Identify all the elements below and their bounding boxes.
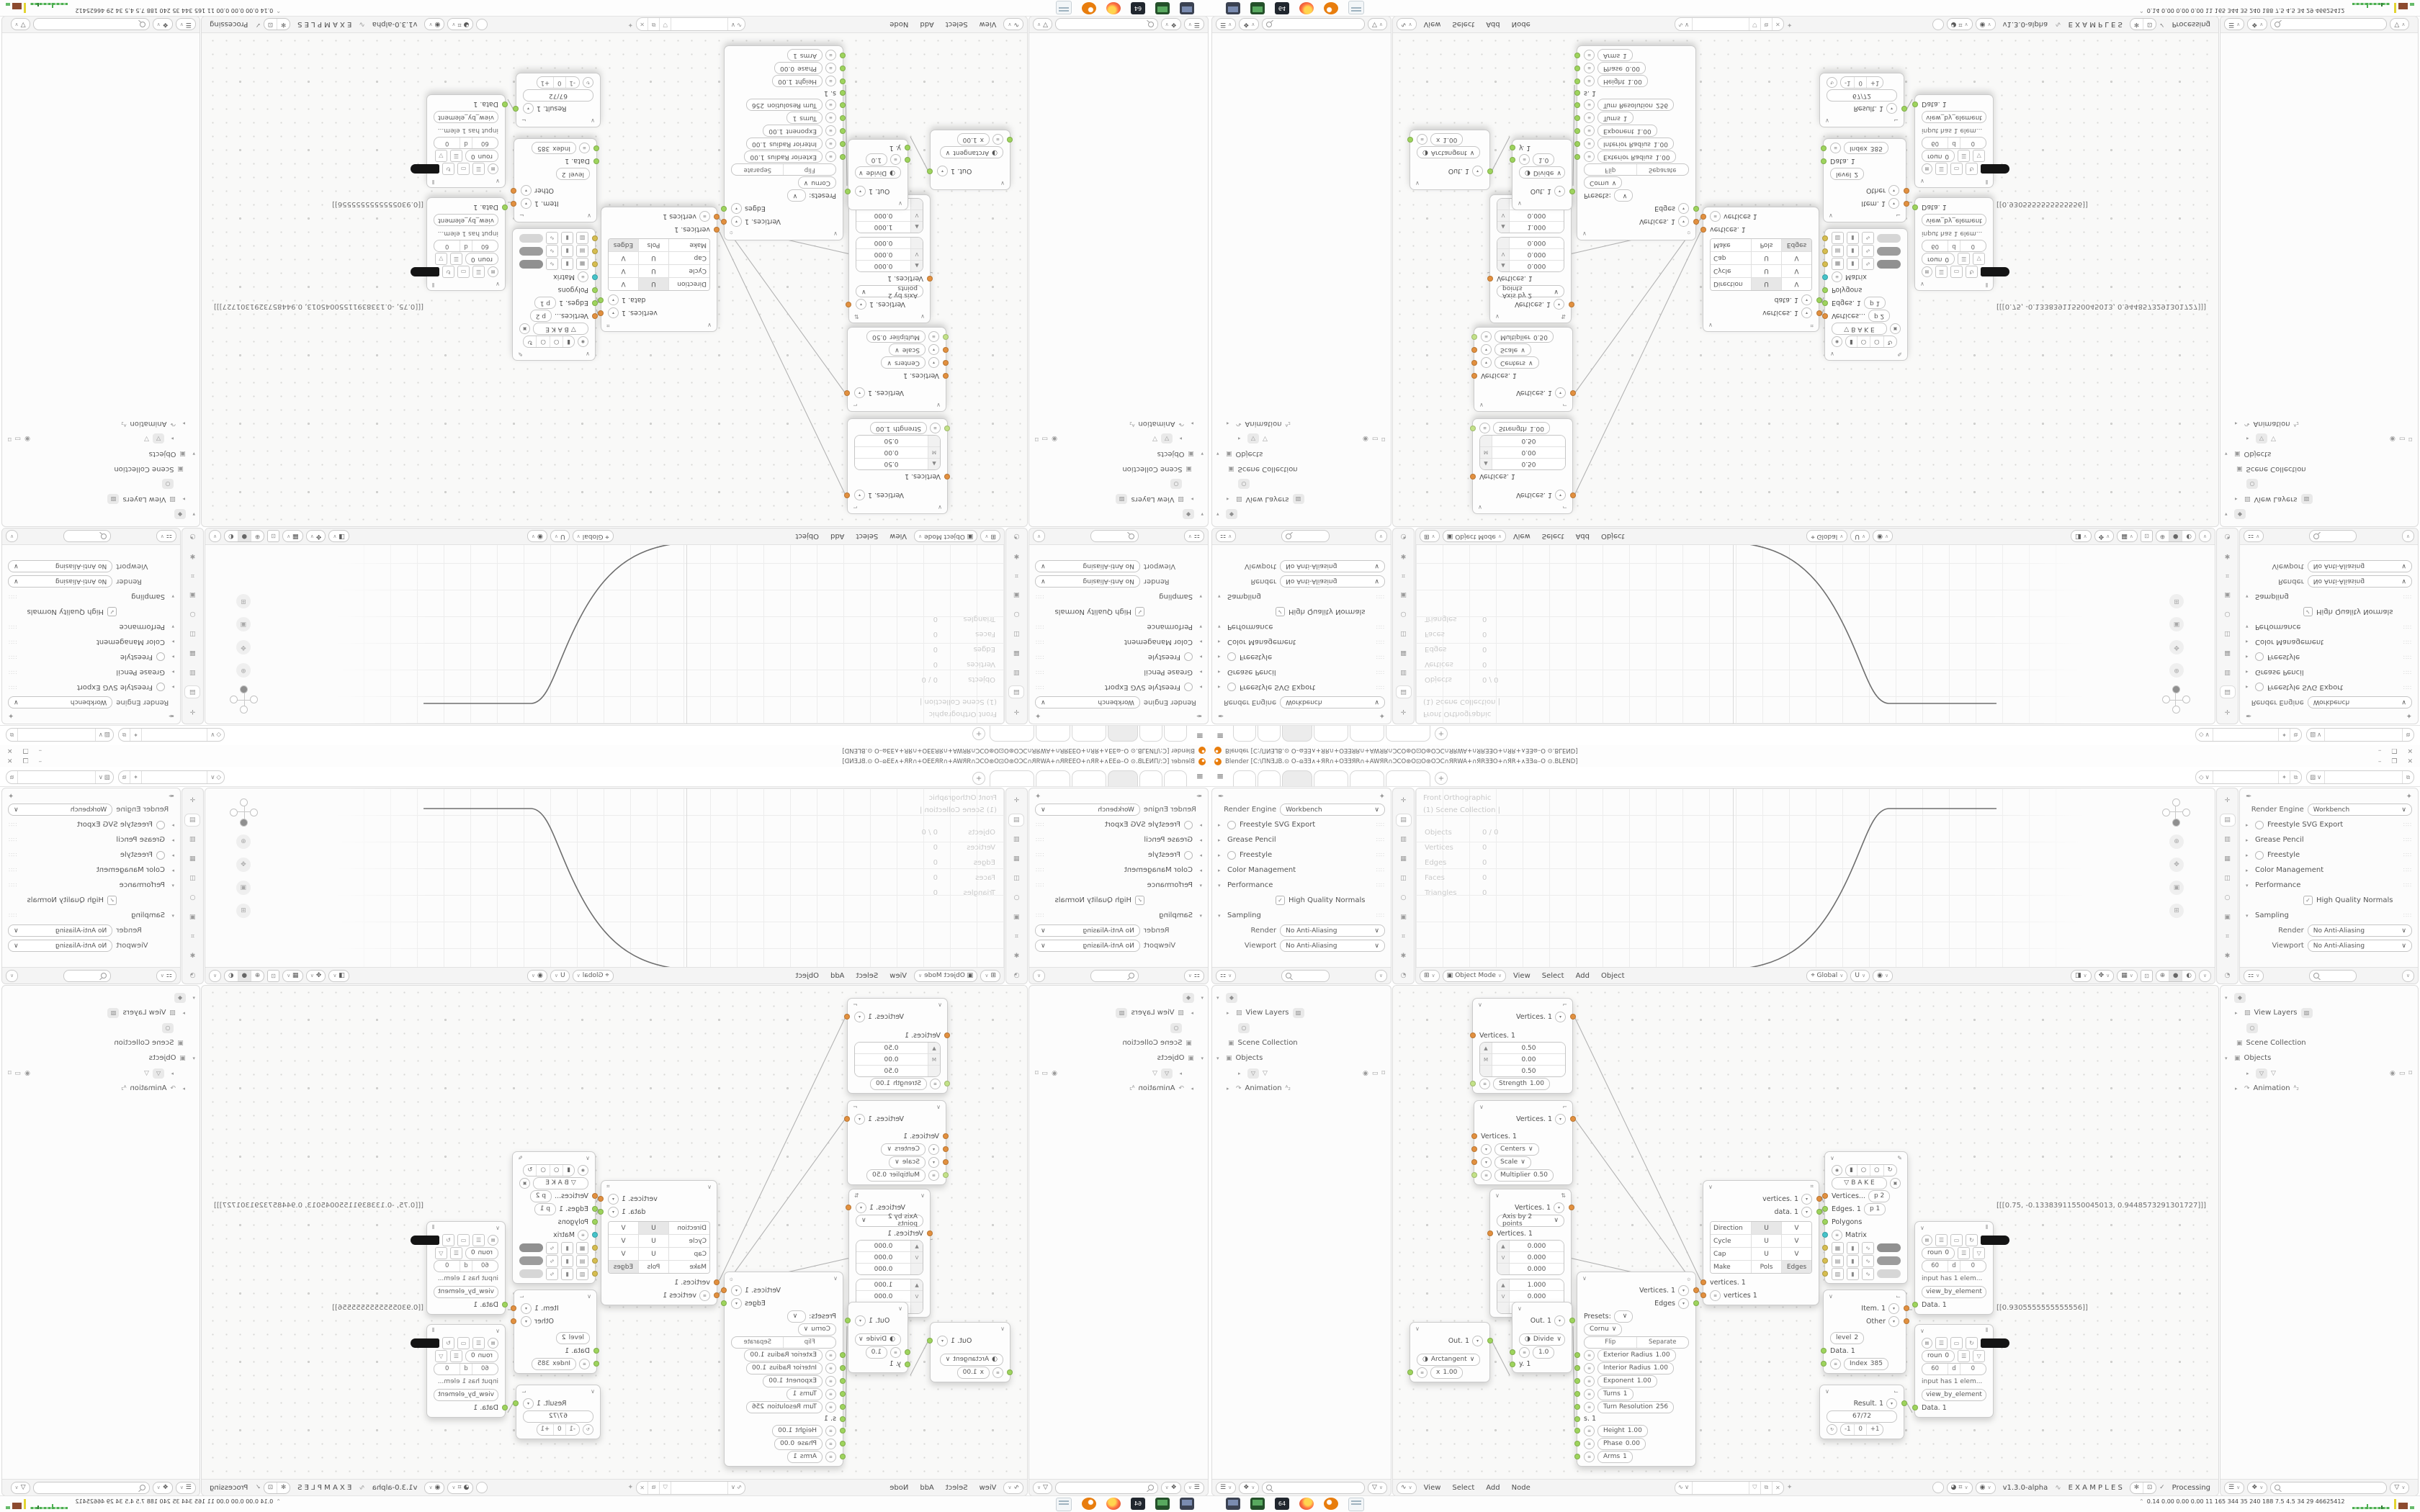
socket-menu-button[interactable]: ▾	[1678, 217, 1689, 228]
outliner-objects-row[interactable]: ▾▣Objects	[2225, 1050, 2418, 1066]
make-edges-button[interactable]: Edges	[1781, 1261, 1811, 1273]
navigation-gizmo[interactable]	[232, 688, 256, 712]
socket-menu-button[interactable]: ▾	[1801, 1207, 1812, 1218]
search-input[interactable]	[2270, 19, 2387, 31]
text-color-swatch[interactable]	[1981, 268, 2009, 277]
world-tab-icon[interactable]: ○	[185, 608, 201, 621]
menu-hamburger-icon[interactable]: ≡	[1216, 771, 1224, 781]
object-toggle[interactable]: ≡	[1584, 100, 1595, 111]
process-indicator-circle[interactable]	[1932, 1482, 1944, 1493]
outliner-root-row[interactable]: ▾◆	[2225, 990, 2418, 1005]
perspective-toggle-icon[interactable]: ⊞	[2169, 594, 2184, 608]
outliner-view-layers-row[interactable]: ▸▨View Layers▨	[2225, 492, 2418, 507]
socket[interactable]	[1471, 360, 1477, 366]
scene-selector[interactable]: ◇∨ ✦ ⧉	[118, 770, 225, 784]
editor-type-button[interactable]: ☰∨	[176, 1482, 196, 1494]
outliner-world-row[interactable]: ○	[2, 477, 195, 492]
outliner-world-row[interactable]: ○	[2225, 477, 2418, 492]
socket[interactable]	[1693, 1300, 1699, 1306]
height-field[interactable]: Height1.00	[1597, 76, 1648, 88]
exponent-field[interactable]: Exponent1.00	[1597, 125, 1657, 138]
examples-menu[interactable]: E X A M P L E S	[2064, 1484, 2127, 1492]
object-toggle[interactable]: ≡	[825, 1426, 836, 1436]
list-icon[interactable]: ☰	[1958, 1350, 1970, 1362]
object-toggle[interactable]: ▾	[1481, 345, 1492, 356]
outliner-root-row[interactable]: ▾◆	[1216, 507, 1391, 522]
section-performance[interactable]: ▾Performance∷∷	[2240, 878, 2418, 893]
menu-add[interactable]: Add	[1482, 21, 1504, 29]
pin-icon[interactable]: ✦	[1035, 793, 1041, 801]
socket[interactable]	[846, 302, 852, 307]
presets-dropdown[interactable]: ∨	[787, 190, 807, 202]
menu-hamburger-icon[interactable]: ≡	[1196, 731, 1204, 741]
socket[interactable]	[1821, 158, 1827, 164]
node-header[interactable]: ∨⌗	[1703, 320, 1819, 331]
view-mode-button[interactable]: view_by_element	[434, 1286, 498, 1298]
socket-menu-button[interactable]: ▾	[1888, 1303, 1899, 1314]
pan-tool-icon[interactable]: ✥	[236, 858, 251, 872]
text-color-swatch[interactable]	[1981, 165, 2009, 174]
presets-dropdown[interactable]: ∨	[1614, 190, 1633, 202]
minimize-button[interactable]: –	[2378, 747, 2382, 755]
socket-menu-button[interactable]: ▾	[1555, 1114, 1566, 1125]
socket[interactable]	[1821, 1361, 1827, 1367]
workspace-tab-1[interactable]	[1164, 770, 1187, 786]
visibility-render-icon[interactable]: ⌑	[8, 1070, 12, 1077]
outliner-object-row[interactable]: ▸▽▽◉▭⌑	[1216, 431, 1391, 446]
viewport-3d[interactable]: Front Orthographic (1) Scene Collection …	[1415, 788, 2215, 984]
object-toggle[interactable]: ≡	[992, 1367, 1003, 1378]
node-stethoscope-2[interactable]: ∨⦀ ▤☰▭↻ roun0☰▽ 60d0 input has 1 elem...…	[426, 1324, 506, 1418]
gizmo-axis-x[interactable]	[2162, 696, 2170, 703]
filter-button[interactable]: ▽∨	[1033, 19, 1052, 31]
object-toggle[interactable]: ≡	[579, 1359, 590, 1369]
solid-shading-icon[interactable]: ●	[238, 531, 251, 542]
socket-menu-button[interactable]: ▾	[1472, 1336, 1483, 1346]
increment-button[interactable]: +1	[1867, 78, 1883, 89]
section-freestyle[interactable]: ▸Freestyle∷∷	[1029, 847, 1208, 863]
socket[interactable]	[1574, 1441, 1580, 1446]
object-toggle[interactable]: ≡	[930, 1079, 941, 1089]
swatch-option-icon[interactable]: ▦	[1832, 258, 1844, 271]
edge-display-icon[interactable]: ○	[1857, 337, 1870, 348]
node-scale[interactable]: ∨⌐ Vertices. 1▾ Vertices. 1 ▾Centers∨ ▾S…	[1474, 327, 1573, 412]
taskbar-monitor-icon[interactable]	[1226, 2, 1240, 14]
object-tab-icon[interactable]: ▣	[185, 588, 201, 601]
node-uv-connection[interactable]: ∨⌗ vertices. 1▾ data. 1▾ DirectionUV Cyc…	[1703, 1180, 1819, 1305]
object-toggle[interactable]: ≡	[825, 50, 836, 61]
socket[interactable]	[1822, 1245, 1828, 1251]
scale-dropdown[interactable]: Scale∨	[1494, 1156, 1531, 1169]
menu-add[interactable]: Add	[826, 533, 848, 541]
xray-button[interactable]: ▦∨	[282, 970, 303, 982]
node-stethoscope-1[interactable]: ∨⦀ ▤☰▭↻ roun0☰▽ 60d0 input has 1 elem...…	[426, 197, 506, 291]
search-input[interactable]	[33, 1482, 150, 1494]
section-freestyle-svg[interactable]: ▸Freestyle SVG Export∷∷	[2, 817, 180, 832]
render-aa-dropdown[interactable]: No Anti-Aliasing∨	[8, 924, 112, 937]
stepper[interactable]: -10+1	[537, 1423, 580, 1436]
refresh-icon[interactable]: ↻	[1827, 78, 1837, 89]
math-function-dropdown[interactable]: ◑Divide∨	[855, 167, 901, 179]
node-header[interactable]: ∨✎	[513, 348, 595, 360]
object-toggle[interactable]: ▾	[928, 1144, 939, 1155]
visibility-render-icon[interactable]: ⌑	[1035, 1070, 1039, 1077]
text-color-swatch[interactable]	[411, 1338, 439, 1348]
turns-field[interactable]: Turns1	[1597, 112, 1633, 125]
socket[interactable]	[1574, 1404, 1580, 1410]
unlink-icon[interactable]: ✕	[1772, 19, 1783, 31]
outliner-scene-collection-row[interactable]: ▣Scene Collection	[1029, 1035, 1204, 1050]
axis-mode-dropdown[interactable]: Axis by 2 points∨	[856, 1215, 923, 1227]
render-tab-icon[interactable]: ▤	[1009, 685, 1025, 698]
minimize-button[interactable]: –	[39, 758, 42, 765]
node-header[interactable]: ∨⌐	[848, 502, 947, 513]
face-display-icon[interactable]: ○	[1870, 1165, 1883, 1176]
outliner-object-row[interactable]: ▸▽▽◉▭⌑	[2225, 1066, 2418, 1081]
menu-select[interactable]: Select	[941, 21, 972, 29]
outliner-scene-collection-row[interactable]: ▣Scene Collection	[1029, 462, 1204, 477]
socket-menu-button[interactable]: ▾	[855, 186, 866, 197]
socket[interactable]	[599, 1209, 604, 1215]
render-aa-dropdown[interactable]: No Anti-Aliasing∨	[2308, 924, 2412, 937]
object-toggle[interactable]: ≡	[1417, 135, 1428, 145]
material-shading-icon[interactable]: ◐	[225, 531, 237, 542]
socket[interactable]	[722, 1287, 727, 1293]
socket-menu-button[interactable]: ▾	[1888, 186, 1899, 197]
spiral-type-dropdown[interactable]: Cornu∨	[798, 1323, 836, 1336]
exponent-field[interactable]: Exponent1.00	[1597, 1375, 1657, 1387]
close-button[interactable]: ✕	[7, 758, 13, 765]
toggle-checkbox[interactable]	[1227, 821, 1236, 829]
value-field[interactable]: 1.0	[866, 154, 887, 166]
viewport-3d[interactable]: Front Orthographic (1) Scene Collection …	[205, 528, 1005, 724]
transform-orientation-dropdown[interactable]: ⌖Global∨	[573, 970, 614, 982]
node-mirror-axis[interactable]: ∨⇅ Vertices. 1▾ Axis by 2 points∨ Vertic…	[848, 194, 931, 323]
filter-button[interactable]: ∨	[2402, 970, 2414, 982]
object-toggle[interactable]: ≡	[1584, 76, 1595, 87]
socket-menu-button[interactable]: ▾	[523, 1398, 534, 1409]
node-stethoscope-1[interactable]: ∨⦀ ▤☰▭↻ roun0☰▽ 60d0 input has 1 elem...…	[1914, 197, 1994, 291]
width-fields[interactable]: 60d0	[1922, 1363, 1986, 1375]
socket[interactable]	[1570, 1116, 1576, 1122]
add-workspace-button[interactable]: +	[1435, 772, 1448, 785]
view-mode-button[interactable]: view_by_element	[434, 112, 498, 124]
node-list-item[interactable]: ∨⌙ Item. 1▾ Other▾ level2 Data. 1 ≡Index…	[1823, 1290, 1906, 1374]
lines-icon[interactable]: ☰	[472, 266, 485, 279]
section-sampling[interactable]: ▾Sampling∷∷	[1212, 908, 1391, 923]
physics-tab-icon[interactable]: ◔	[1009, 530, 1025, 543]
socket-menu-button[interactable]: ▾	[1678, 204, 1689, 215]
scene-name-field[interactable]	[142, 729, 207, 741]
node-header[interactable]: ∨⌐	[1473, 502, 1572, 513]
taskbar-floppy-icon[interactable]: 64	[1131, 1498, 1145, 1510]
swatch-option-icon[interactable]: ∿	[546, 1242, 558, 1254]
editor-type-button[interactable]: ☰∨	[176, 19, 196, 31]
object-toggle[interactable]: ≡	[1584, 50, 1595, 61]
visibility-render-icon[interactable]: ⌑	[2408, 1070, 2412, 1077]
index-field[interactable]: Index385	[1844, 1358, 1888, 1370]
particles-tab-icon[interactable]: ✱	[1009, 950, 1025, 963]
lines-icon[interactable]: ☰	[1935, 1337, 1948, 1349]
object-tab-icon[interactable]: ▣	[2220, 911, 2236, 924]
copy-icon[interactable]: ⧉	[1760, 1482, 1772, 1494]
socket[interactable]	[1822, 274, 1828, 280]
socket[interactable]	[1822, 261, 1828, 267]
modifier-tab-icon[interactable]: ⌗	[2220, 930, 2236, 943]
taskbar-monitor-icon[interactable]	[1180, 1498, 1194, 1510]
view-mode-button[interactable]: view_by_element	[434, 1389, 498, 1401]
workspace-tab-6[interactable]	[1386, 726, 1430, 742]
world-tab-icon[interactable]: ○	[2220, 608, 2236, 621]
workspace-tab-1[interactable]	[1164, 726, 1187, 742]
copy-icon[interactable]: ⧉	[648, 1482, 660, 1494]
display-mode-button[interactable]: ❖∨	[2247, 19, 2267, 31]
node-header[interactable]: ∨۞	[725, 228, 843, 240]
lines-icon[interactable]: ☰	[1935, 266, 1948, 279]
swatch-option-icon[interactable]: ▮	[561, 1242, 573, 1254]
swatch-option-icon[interactable]: ▮	[1847, 1255, 1859, 1267]
gizmo-axis-z-neg[interactable]	[240, 819, 248, 827]
gizmo-axis-x[interactable]	[250, 809, 258, 816]
swatch-option-icon[interactable]: ∿	[1862, 1268, 1874, 1280]
outliner-animation-row[interactable]: ▸↷Animationᴬ₂	[2225, 1081, 2418, 1096]
gizmo-axis-z-neg[interactable]	[2172, 685, 2180, 693]
width-fields[interactable]: 60d0	[1922, 240, 1986, 253]
menu-select[interactable]: Select	[1448, 1484, 1479, 1492]
scene-tab-icon[interactable]: ◫	[1009, 627, 1025, 640]
workspace-tab-4[interactable]	[1314, 726, 1348, 742]
socket[interactable]	[1470, 426, 1476, 431]
camera-view-icon[interactable]: ▣	[2169, 617, 2184, 631]
bake-button[interactable]: ▽B A K E	[1832, 323, 1887, 336]
socket[interactable]	[722, 1300, 727, 1306]
display-toggles[interactable]: ▮○○↻	[1845, 336, 1897, 348]
display-icon[interactable]: ▤	[488, 1235, 498, 1246]
vertices-badge[interactable]: p 2	[530, 310, 552, 323]
section-performance[interactable]: ▾Performance∷∷	[2, 878, 180, 893]
socket-menu-button[interactable]: ▾	[731, 217, 742, 228]
copy-icon[interactable]: ⧉	[119, 771, 130, 783]
editor-type-button[interactable]: ⚏∨	[1184, 531, 1204, 543]
socket[interactable]	[1822, 287, 1828, 293]
node-header[interactable]: ∨⇅	[849, 1189, 930, 1201]
socket[interactable]	[1821, 1348, 1827, 1354]
object-toggle[interactable]: ≡	[1584, 152, 1595, 163]
editor-type-button[interactable]: ∿∨	[1397, 1482, 1417, 1494]
socket[interactable]	[1574, 53, 1580, 58]
object-toggle[interactable]: ≡	[1479, 423, 1490, 434]
node-math-arctangent[interactable]: ∨ Out. 1▾ ◑Arctangent∨ ≡x1.00	[1410, 1322, 1490, 1382]
socket[interactable]	[1510, 157, 1515, 163]
object-toggle[interactable]: ▾	[1481, 1144, 1492, 1155]
edge-display-icon[interactable]: ○	[1857, 1165, 1870, 1176]
add-workspace-button[interactable]: +	[972, 772, 985, 785]
taskbar-floppy-icon[interactable]: 64	[1275, 1498, 1289, 1510]
filter-icon[interactable]: ▽	[1973, 1247, 1985, 1259]
tool-tab-icon[interactable]: ✛	[1009, 794, 1025, 807]
index-field[interactable]: Index385	[532, 143, 576, 155]
filter-button[interactable]: ▽∨	[11, 1482, 30, 1494]
outliner-object-row[interactable]: ▸▽▽◉▭⌑	[2, 1066, 195, 1081]
display-toggles[interactable]: ▮○○↻	[1845, 1164, 1897, 1176]
refresh-icon[interactable]: ↻	[1827, 1424, 1837, 1435]
strength-field[interactable]: Strength1.00	[870, 1078, 927, 1090]
view-layer-tab-icon[interactable]: ▦	[1009, 647, 1025, 660]
render-engine-dropdown[interactable]: Workbench∨	[2308, 804, 2412, 816]
socket[interactable]	[846, 189, 851, 194]
filter-button[interactable]: ∨	[1375, 970, 1387, 982]
visibility-viewport-icon[interactable]: ▭	[15, 436, 22, 443]
node-header[interactable]: ∨⌗	[601, 1181, 717, 1192]
edge-display-icon[interactable]: ○	[550, 1165, 563, 1176]
snapping-button[interactable]: U∨	[1850, 970, 1870, 982]
face-color-swatch[interactable]	[1877, 1269, 1901, 1278]
editor-type-button[interactable]: ⊞∨	[980, 531, 1000, 543]
object-toggle[interactable]: ≡	[1519, 155, 1530, 166]
pin-icon[interactable]: ✦	[2278, 771, 2290, 783]
render-engine-dropdown[interactable]: Workbench∨	[1280, 804, 1385, 816]
node-tree-selector[interactable]: ∿∨ ⛉ ⧉ ✕	[636, 1481, 745, 1495]
checkbox-checked[interactable]: ✓	[1135, 607, 1144, 616]
section-grease-pencil[interactable]: ▸Grease Pencil∷∷	[2, 832, 180, 847]
wireframe-shading-icon[interactable]: ⊕	[2156, 531, 2169, 542]
viewport-aa-dropdown[interactable]: No Anti-Aliasing∨	[8, 940, 112, 952]
draft-mode-button[interactable]: ◕⌗∨	[1947, 1482, 1973, 1494]
menu-view[interactable]: View	[975, 1484, 1001, 1492]
menu-hamburger-icon[interactable]: ≡	[1196, 771, 1204, 781]
outliner-root-row[interactable]: ▾◆	[2, 990, 195, 1005]
outliner-scene-collection-row[interactable]: ▣Scene Collection	[2, 1035, 195, 1050]
toggle-checkbox[interactable]	[2255, 821, 2264, 829]
object-toggle[interactable]: ≡	[1584, 113, 1595, 124]
node-math-arctangent[interactable]: ∨ Out. 1▾ ◑Arctangent∨ ≡x1.00	[930, 130, 1010, 190]
socket[interactable]	[1574, 115, 1580, 121]
swatch-option-icon[interactable]: ▮	[1847, 233, 1859, 245]
visibility-eye-icon[interactable]: ◉	[1052, 1070, 1057, 1077]
socket[interactable]	[845, 1116, 851, 1122]
socket[interactable]	[511, 188, 517, 194]
toggle-checkbox[interactable]	[2255, 653, 2264, 662]
section-grease-pencil[interactable]: ▸Grease Pencil∷∷	[1212, 832, 1391, 847]
section-freestyle[interactable]: ▸Freestyle∷∷	[2, 847, 180, 863]
restore-button[interactable]: ❐	[23, 758, 29, 765]
socket-menu-button[interactable]: ▾	[608, 308, 619, 319]
vector-input[interactable]: ▲0.50 M0.00 0.50	[854, 1042, 941, 1077]
section-color-management[interactable]: ▸Color Management∷∷	[2, 863, 180, 878]
minimize-button[interactable]: –	[2378, 758, 2382, 765]
toggle-checkbox[interactable]	[156, 683, 165, 692]
edges-badge[interactable]: p 1	[1864, 1203, 1886, 1215]
view-layer-name-field[interactable]	[2325, 729, 2402, 741]
swatch-option-icon[interactable]: ▮	[561, 1255, 573, 1267]
taskbar-notepad-icon[interactable]	[1056, 1498, 1072, 1511]
swatch-option-icon[interactable]: ▦	[576, 1242, 588, 1254]
menu-select[interactable]: Select	[1538, 972, 1569, 980]
modifier-tab-icon[interactable]: ⌗	[185, 930, 201, 943]
outliner-view-layers-row[interactable]: ▸▨View Layers▨	[2225, 1005, 2418, 1020]
toggle-checkbox[interactable]	[1184, 851, 1193, 860]
frame-icon[interactable]: ▭	[1950, 1234, 1963, 1246]
zero-button[interactable]: 0	[1855, 1424, 1866, 1435]
checkbox-checked[interactable]: ✓	[1276, 896, 1285, 905]
spiral-type-dropdown[interactable]: Cornu∨	[1584, 1323, 1622, 1336]
presets-dropdown[interactable]: ∨	[1614, 1310, 1633, 1323]
workspace-tab-6[interactable]	[990, 726, 1034, 742]
shading-options-button[interactable]: ∨	[209, 970, 221, 982]
arms-field[interactable]: Arms1	[1597, 50, 1633, 62]
socket[interactable]	[1574, 1352, 1580, 1358]
gizmo-axis-z[interactable]	[240, 706, 248, 714]
scene-name-field[interactable]	[2213, 729, 2278, 741]
object-toggle[interactable]: ≡	[825, 63, 836, 74]
restore-button[interactable]: ❐	[2391, 747, 2397, 755]
outliner-objects-row[interactable]: ▾▣Objects	[2, 446, 195, 462]
object-toggle[interactable]: ≡	[579, 143, 590, 154]
frame-icon[interactable]: ▭	[457, 163, 470, 176]
transform-orientation-dropdown[interactable]: ⌖Global∨	[1806, 970, 1847, 982]
view-mode-button[interactable]: view_by_element	[434, 215, 498, 227]
uv-options-grid[interactable]: DirectionUV CycleUV CapUV MakePolsEdges	[608, 238, 710, 291]
node-stethoscope-1[interactable]: ∨⦀ ▤☰▭↻ roun0☰▽ 60d0 input has 1 elem...…	[1914, 1221, 1994, 1315]
menu-add[interactable]: Add	[915, 1484, 938, 1492]
cycle-v-button[interactable]: V	[609, 1235, 639, 1247]
settings-icon[interactable]: ✻	[2130, 1482, 2143, 1493]
render-aa-dropdown[interactable]: No Anti-Aliasing∨	[1280, 575, 1385, 588]
node-uv-connection[interactable]: ∨⌗ vertices. 1▾ data. 1▾ DirectionUV Cyc…	[601, 207, 717, 332]
unlink-icon[interactable]: ✕	[637, 19, 648, 31]
vertices-badge[interactable]: p 2	[1868, 1190, 1890, 1202]
socket[interactable]	[1693, 206, 1699, 212]
view-layer-tab-icon[interactable]: ▦	[1396, 852, 1412, 865]
socket[interactable]	[1912, 102, 1918, 107]
socket[interactable]	[1700, 1292, 1706, 1298]
socket[interactable]	[1816, 310, 1822, 316]
width-fields[interactable]: 60d0	[434, 1260, 498, 1272]
object-toggle[interactable]: ≡	[699, 1290, 710, 1301]
swatch-option-icon[interactable]: ▮	[561, 233, 573, 245]
width-fields[interactable]: 60d0	[434, 240, 498, 253]
eye-icon[interactable]: ◉	[1832, 1165, 1842, 1176]
socket[interactable]	[1693, 1287, 1699, 1293]
taskbar-terminal-icon[interactable]	[1250, 2, 1265, 14]
object-toggle[interactable]: ▾	[928, 1157, 939, 1168]
shading-mode-switch[interactable]: ⊕ ● ◐	[224, 970, 264, 982]
node-spiral[interactable]: ∨۞ Vertices. 1▾ Edges▾ Presets:∨ Cornu∨ …	[724, 1272, 843, 1467]
node-header[interactable]: ∨⌐	[848, 400, 946, 411]
modifier-tab-icon[interactable]: ⌗	[1009, 569, 1025, 582]
render-aa-dropdown[interactable]: No Anti-Aliasing∨	[8, 575, 112, 588]
node-header[interactable]: ∨⌐	[1474, 400, 1572, 411]
phase-field[interactable]: Phase0.00	[1597, 63, 1646, 75]
section-color-management[interactable]: ▸Color Management∷∷	[1029, 634, 1208, 649]
search-input[interactable]	[1055, 19, 1158, 31]
lines-icon[interactable]: ☰	[1935, 1234, 1948, 1246]
text-color-swatch[interactable]	[411, 165, 439, 174]
socket[interactable]	[1574, 1428, 1580, 1434]
expression-field[interactable]: 67/72	[1827, 1410, 1897, 1423]
view-layer-tab-icon[interactable]: ▦	[2220, 647, 2236, 660]
vertex-color-swatch[interactable]	[519, 1243, 543, 1252]
stepper[interactable]: -10+1	[1840, 77, 1883, 89]
socket[interactable]	[1904, 188, 1909, 194]
value-field[interactable]: 1.0	[1533, 1346, 1554, 1359]
math-function-dropdown[interactable]: ◑Arctangent∨	[1417, 147, 1480, 159]
face-display-icon[interactable]: ○	[536, 1165, 549, 1176]
viewport-aa-dropdown[interactable]: No Anti-Aliasing∨	[1280, 940, 1385, 952]
toggle-checkbox[interactable]	[2255, 851, 2264, 860]
socket[interactable]	[514, 106, 519, 112]
overlays-button[interactable]: ✥∨	[2094, 970, 2115, 982]
